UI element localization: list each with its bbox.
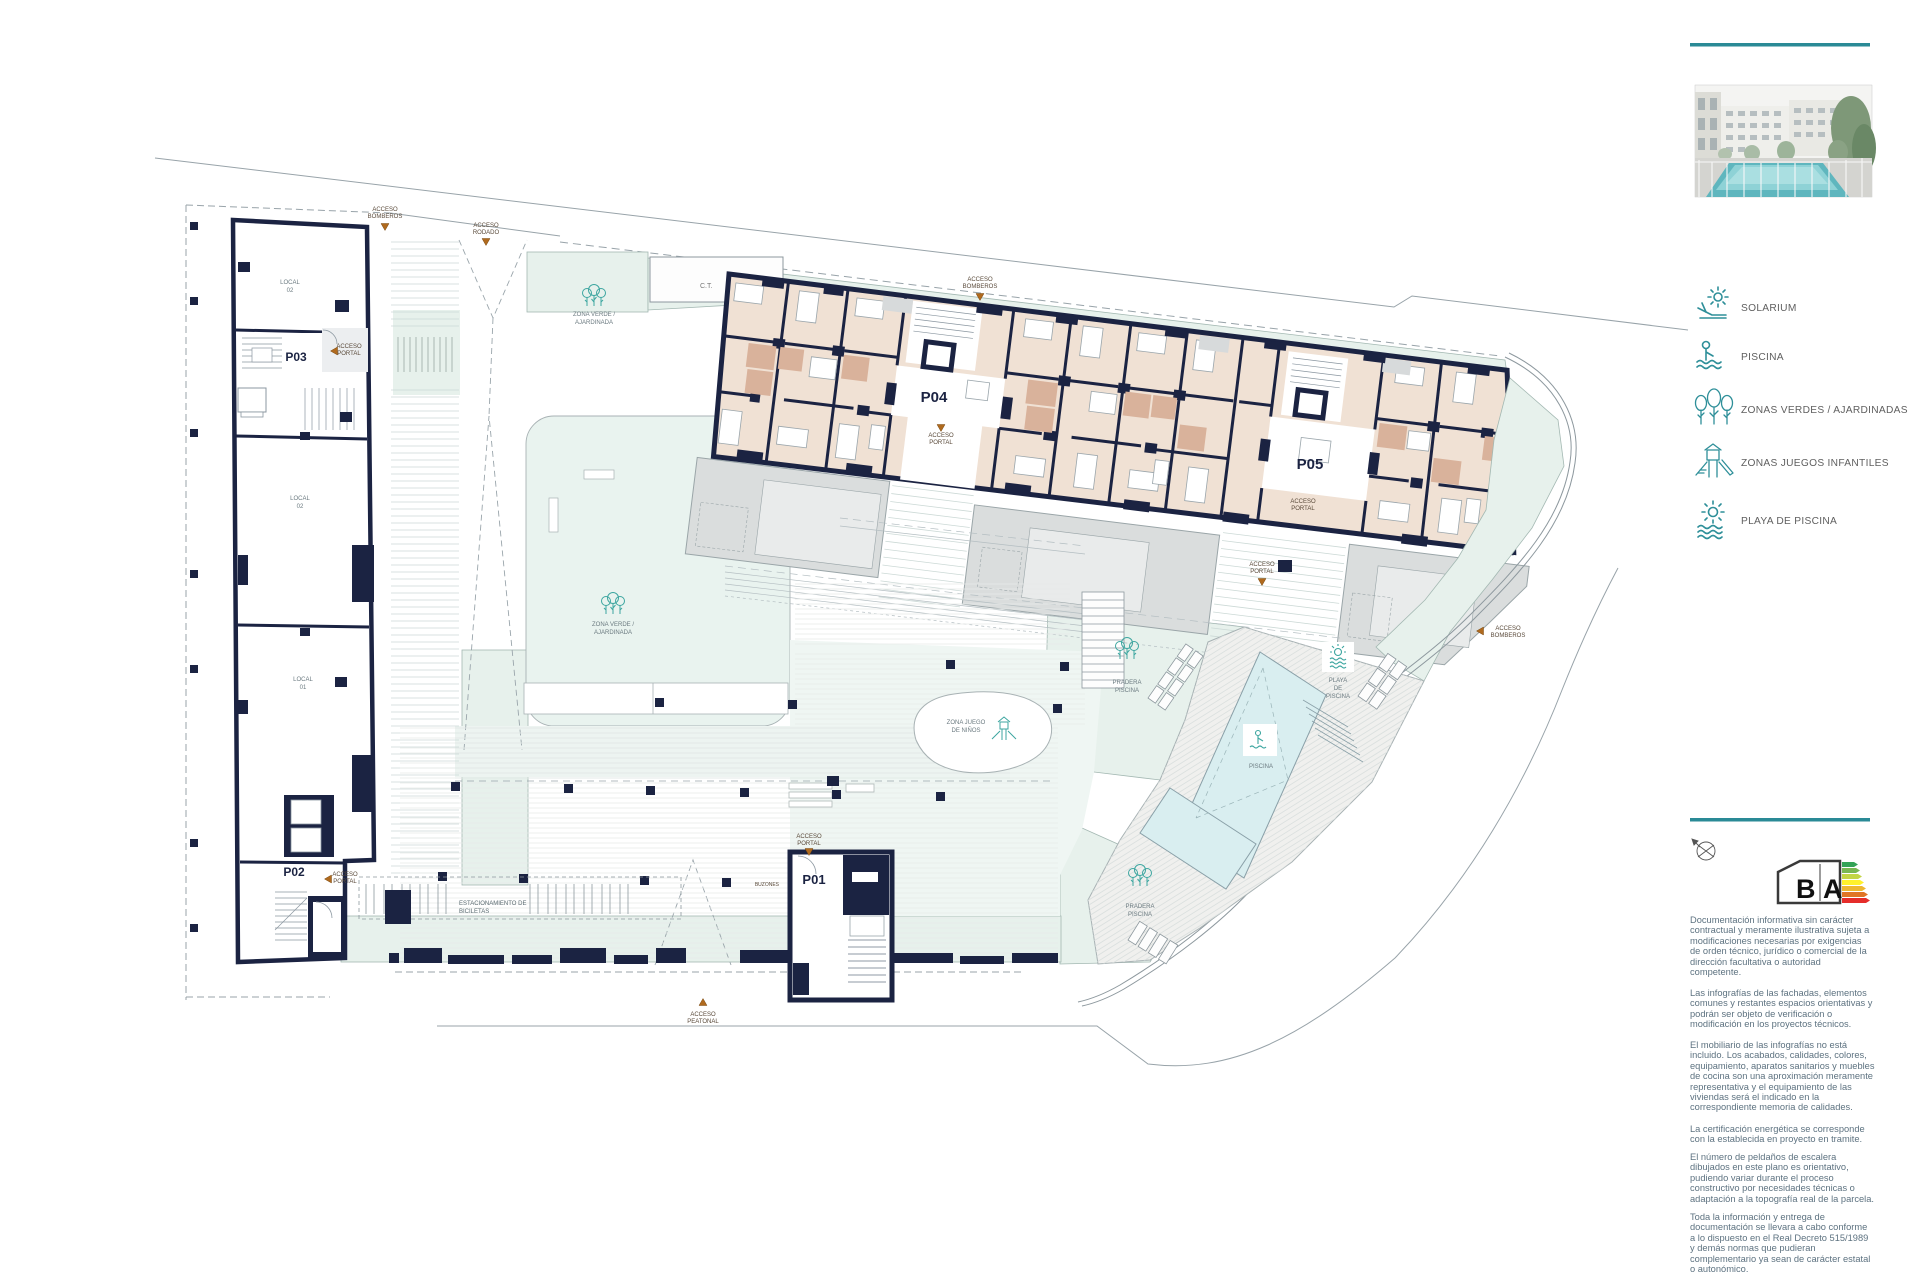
svg-text:B: B xyxy=(1796,874,1816,904)
svg-text:PRADERA: PRADERA xyxy=(1125,904,1154,910)
svg-text:PORTAL: PORTAL xyxy=(333,879,357,885)
svg-text:PEATONAL: PEATONAL xyxy=(687,1019,719,1025)
svg-text:DE NIÑOS: DE NIÑOS xyxy=(951,727,980,734)
svg-text:ACCESO: ACCESO xyxy=(1249,562,1275,568)
svg-text:02: 02 xyxy=(287,288,294,294)
svg-text:ACCESO: ACCESO xyxy=(372,207,398,213)
svg-text:PLAYA: PLAYA xyxy=(1329,678,1347,684)
svg-text:PORTAL: PORTAL xyxy=(1291,506,1315,512)
svg-text:PISCINA: PISCINA xyxy=(1128,912,1152,918)
svg-text:BUZONES: BUZONES xyxy=(755,882,780,888)
svg-text:P01: P01 xyxy=(802,872,825,887)
svg-text:AJARDINADA: AJARDINADA xyxy=(575,320,613,326)
svg-text:ESTACIONAMIENTO DE: ESTACIONAMIENTO DE xyxy=(459,901,526,907)
svg-text:ACCESO: ACCESO xyxy=(967,277,993,283)
svg-text:PORTAL: PORTAL xyxy=(1250,569,1274,575)
svg-text:P05: P05 xyxy=(1297,456,1324,473)
svg-text:PORTAL: PORTAL xyxy=(797,841,821,847)
svg-text:02: 02 xyxy=(297,504,304,510)
svg-text:PORTAL: PORTAL xyxy=(929,440,953,446)
svg-text:ACCESO: ACCESO xyxy=(928,433,954,439)
svg-text:P02: P02 xyxy=(283,865,305,879)
svg-text:ACCESO: ACCESO xyxy=(1290,499,1316,505)
svg-text:AJARDINADA: AJARDINADA xyxy=(594,630,632,636)
svg-text:BOMBEROS: BOMBEROS xyxy=(368,214,403,220)
svg-text:ACCESO: ACCESO xyxy=(690,1012,716,1018)
svg-text:ACCESO: ACCESO xyxy=(796,834,822,840)
svg-text:LOCAL: LOCAL xyxy=(293,677,313,683)
svg-text:BICILETAS: BICILETAS xyxy=(459,909,489,915)
svg-text:C.T.: C.T. xyxy=(700,283,713,290)
svg-text:PORTAL: PORTAL xyxy=(337,351,361,357)
svg-text:ACCESO: ACCESO xyxy=(473,223,499,229)
svg-text:LOCAL: LOCAL xyxy=(290,496,310,502)
svg-text:ZONA VERDE /: ZONA VERDE / xyxy=(573,312,615,318)
svg-text:ZONA JUEGO: ZONA JUEGO xyxy=(947,720,986,726)
svg-text:ZONA VERDE /: ZONA VERDE / xyxy=(592,622,634,628)
svg-text:P03: P03 xyxy=(285,350,307,364)
svg-text:BOMBEROS: BOMBEROS xyxy=(1491,633,1526,639)
svg-text:PISCINA: PISCINA xyxy=(1115,688,1139,694)
svg-text:A: A xyxy=(1823,874,1843,904)
svg-text:LOCAL: LOCAL xyxy=(280,280,300,286)
svg-text:P04: P04 xyxy=(921,389,948,406)
svg-text:DE: DE xyxy=(1334,686,1342,692)
svg-text:ACCESO: ACCESO xyxy=(332,872,358,878)
svg-text:ACCESO: ACCESO xyxy=(336,344,362,350)
svg-text:PISCINA: PISCINA xyxy=(1326,694,1350,700)
svg-text:01: 01 xyxy=(300,685,307,691)
svg-text:ACCESO: ACCESO xyxy=(1495,626,1521,632)
svg-text:PISCINA: PISCINA xyxy=(1249,764,1273,770)
svg-text:PRADERA: PRADERA xyxy=(1112,680,1141,686)
svg-text:RODADO: RODADO xyxy=(473,230,500,236)
svg-text:BOMBEROS: BOMBEROS xyxy=(963,284,998,290)
